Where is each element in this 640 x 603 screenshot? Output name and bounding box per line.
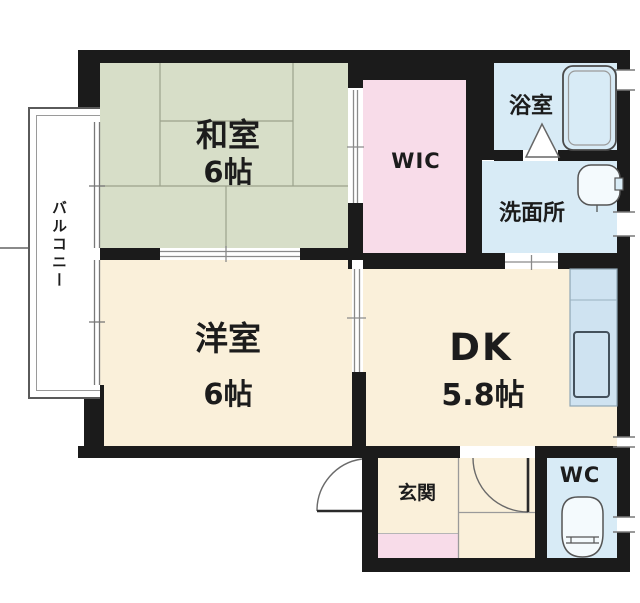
bath-folding-door-icon — [526, 124, 559, 157]
label-dk: DK — [401, 329, 561, 368]
label-wic: WIC — [366, 150, 466, 172]
label-balcony: バルコニー — [49, 200, 70, 290]
label-genkan: 玄関 — [377, 484, 457, 504]
label-washitsu-size: 6帖 — [148, 157, 308, 187]
washbasin-icon — [578, 165, 623, 212]
kitchen-counter — [570, 269, 617, 406]
kitchen-sink-icon — [574, 332, 609, 397]
entrance-door-arc — [317, 459, 362, 511]
label-bathroom: 浴室 — [481, 95, 581, 118]
label-washroom: 洗面所 — [482, 202, 582, 225]
label-wc: WC — [540, 464, 620, 486]
label-youshitsu-size: 6帖 — [148, 379, 308, 409]
window-lines — [89, 122, 105, 385]
toilet-icon — [562, 497, 603, 557]
label-youshitsu: 洋室 — [148, 322, 308, 357]
floor-plan: 和室 6帖 WIC 浴室 洗面所 洋室 6帖 DK 5.8帖 玄関 WC バルコ… — [0, 0, 640, 603]
fixtures-layer — [0, 0, 640, 603]
label-dk-size: 5.8帖 — [403, 380, 563, 412]
label-washitsu: 和室 — [148, 119, 308, 153]
genkan-step-lines — [459, 458, 536, 558]
dk-door-arc — [473, 458, 528, 512]
